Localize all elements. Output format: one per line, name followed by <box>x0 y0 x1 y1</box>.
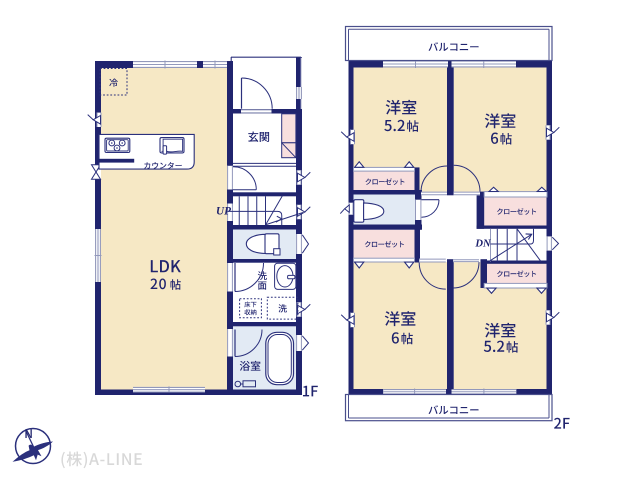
svg-text:DN: DN <box>474 239 491 250</box>
svg-text:UP: UP <box>216 205 231 217</box>
